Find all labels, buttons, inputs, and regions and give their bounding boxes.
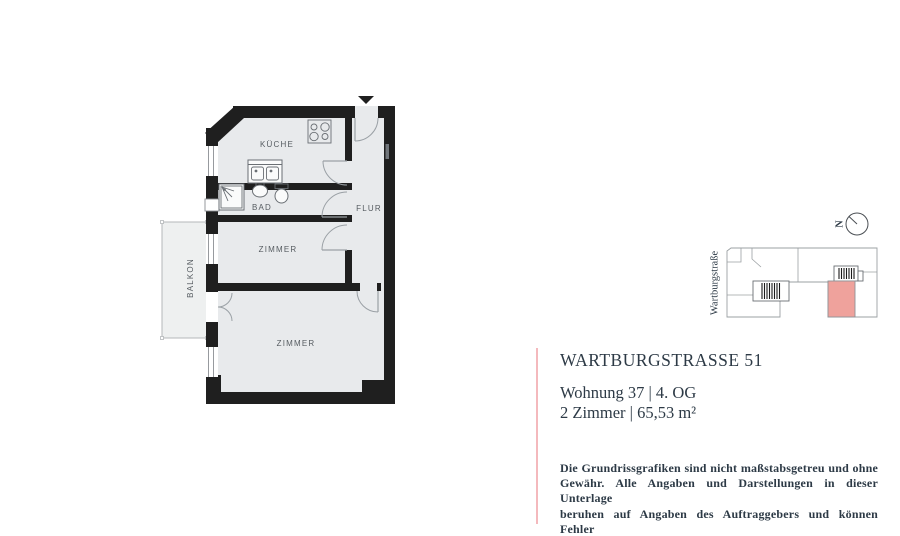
room-label-zimmer1: ZIMMER xyxy=(259,245,298,254)
disclaimer-line: Die Grundrissgrafiken sind nicht maßstab… xyxy=(560,461,878,476)
disclaimer: Die Grundrissgrafiken sind nicht maßstab… xyxy=(560,461,878,536)
entrance-arrow-icon xyxy=(358,96,374,104)
north-label: N xyxy=(835,220,846,228)
accent-line xyxy=(536,348,538,524)
highlighted-unit xyxy=(828,281,855,317)
size-line: 2 Zimmer | 65,53 m² xyxy=(560,403,880,423)
room-label-bad: BAD xyxy=(252,203,272,212)
page: KÜCHE BAD FLUR ZIMMER ZIMMER BALKON N xyxy=(0,0,900,536)
wall-duct xyxy=(205,199,219,211)
room-label-kueche: KÜCHE xyxy=(260,140,294,149)
site-plan: N xyxy=(693,198,885,328)
staircase-icon-left xyxy=(753,281,789,301)
north-compass-icon: N xyxy=(835,213,869,235)
page-title: WARTBURGSTRASSE 51 xyxy=(560,350,880,371)
floorplan: KÜCHE BAD FLUR ZIMMER ZIMMER BALKON xyxy=(150,88,410,413)
street-label: Wartburgstraße xyxy=(710,251,721,316)
balcony-door-opening xyxy=(206,292,218,322)
unit-line: Wohnung 37 | 4. OG xyxy=(560,383,880,403)
wall-niche xyxy=(386,144,390,159)
shower-icon xyxy=(219,184,244,210)
disclaimer-line: Gewähr. Alle Angaben und Darstellungen i… xyxy=(560,476,878,506)
disclaimer-line: beruhen auf Angaben des Auftraggebers un… xyxy=(560,507,878,536)
apartment-info: WARTBURGSTRASSE 51 Wohnung 37 | 4. OG 2 … xyxy=(560,350,880,423)
balcony xyxy=(161,221,209,340)
room-label-zimmer2: ZIMMER xyxy=(277,339,316,348)
entrance-floor xyxy=(355,106,378,118)
vanity-icon xyxy=(248,160,282,183)
room-label-balkon: BALKON xyxy=(186,258,195,298)
room-label-flur: FLUR xyxy=(356,204,382,213)
apartment-floor xyxy=(218,118,385,392)
